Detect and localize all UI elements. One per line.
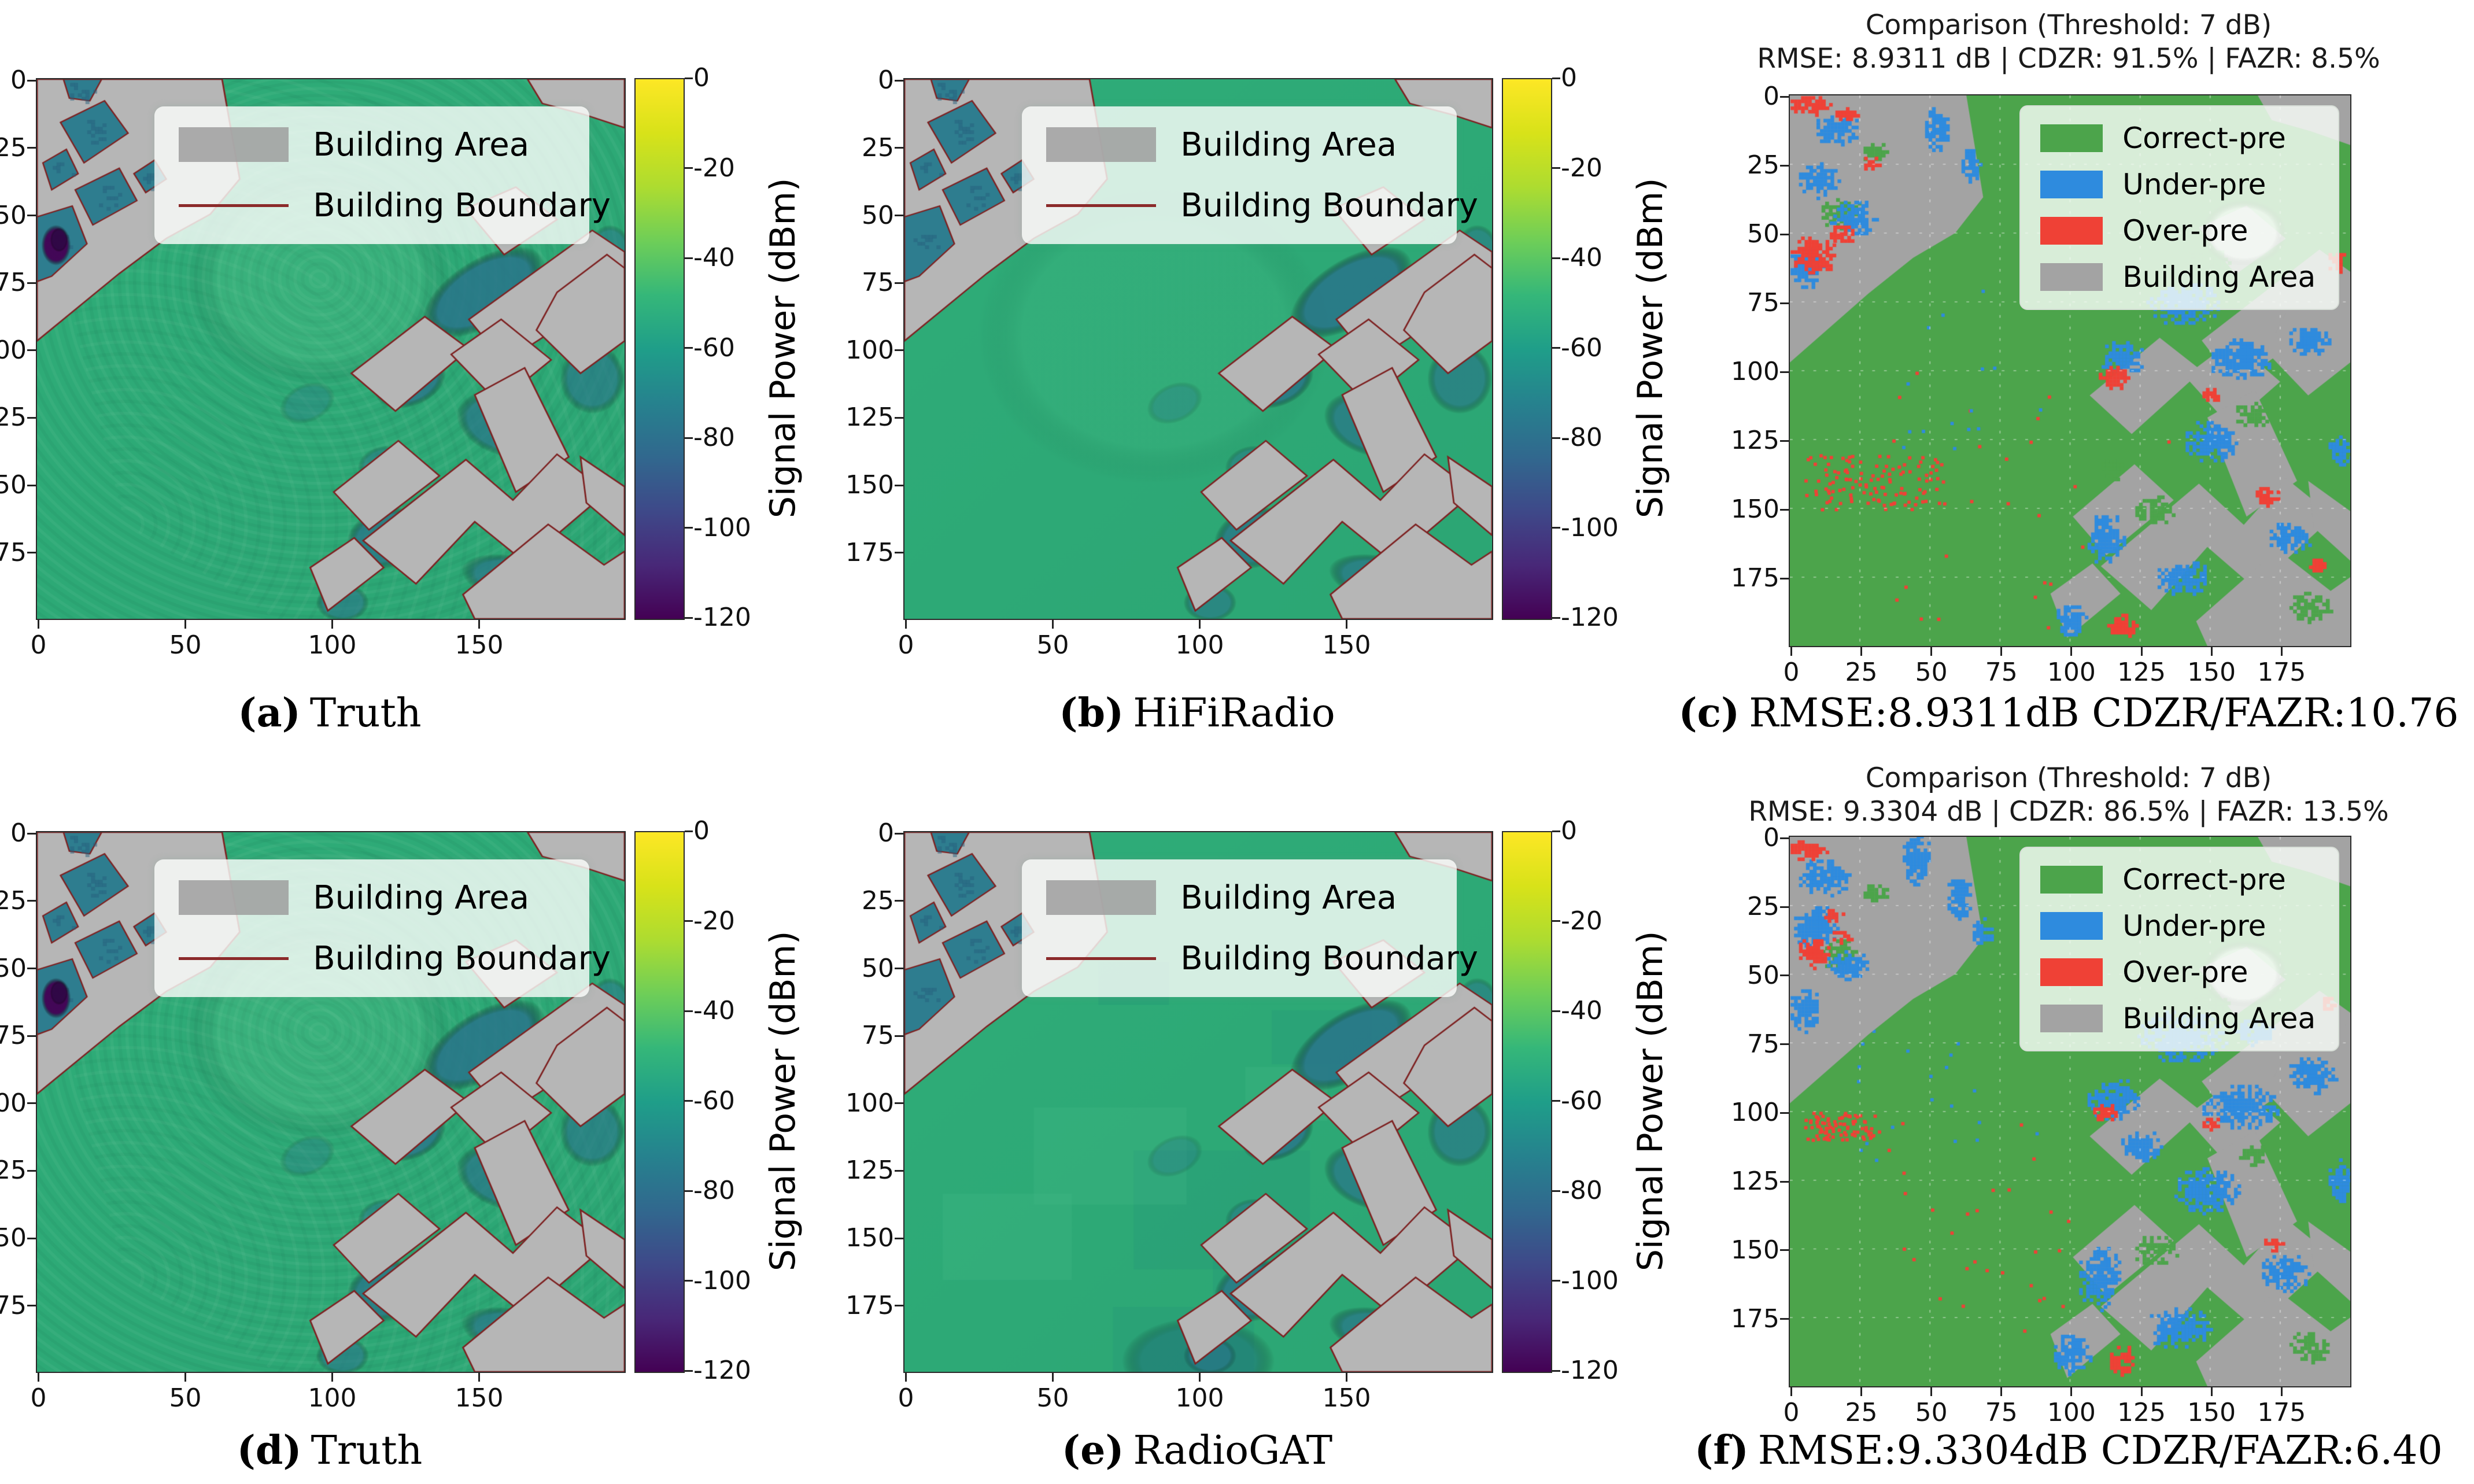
building-area-swatch	[179, 127, 289, 162]
y-tick-label: 75	[1716, 1029, 1779, 1059]
x-tick-label: 50	[1018, 1383, 1088, 1413]
colorbar: Signal Power (dBm) 0-20-40-60-80-100-120	[1502, 831, 1687, 1371]
y-tick-mark	[1780, 1249, 1789, 1251]
x-tick-label: 0	[1756, 1398, 1826, 1427]
legend-row-building-area: Building Area	[1046, 126, 1432, 164]
y-tick-mark	[895, 1035, 903, 1037]
comparison-title-line1: Comparison (Threshold: 7 dB)	[1664, 9, 2473, 41]
comparison-title-line1: Comparison (Threshold: 7 dB)	[1664, 762, 2473, 794]
x-tick-label: 0	[872, 1383, 941, 1413]
y-tick-mark	[895, 1170, 903, 1172]
caption-tag: (a)	[238, 690, 300, 736]
y-tick-label: 175	[830, 1291, 894, 1320]
correct-pre-swatch	[2040, 866, 2103, 894]
panel-radiogat: Building Area Building Boundary 05010015…	[903, 831, 1493, 1373]
y-tick-mark	[1780, 837, 1789, 839]
y-tick-label: 50	[0, 201, 27, 230]
colorbar-tick-mark	[1552, 830, 1560, 832]
caption-a: (a)Truth	[69, 690, 590, 736]
map-legend: Building Area Building Boundary	[154, 106, 589, 244]
colorbar-label: Signal Power (dBm)	[757, 78, 809, 618]
x-tick-label: 100	[2037, 658, 2106, 687]
legend-label: Under-pre	[2122, 909, 2266, 943]
colorbar-label: Signal Power (dBm)	[757, 831, 809, 1371]
x-tick-label: 150	[2177, 658, 2246, 687]
colorbar-tick-mark	[1552, 1190, 1560, 1192]
caption-text: Truth	[311, 1428, 423, 1474]
y-tick-mark	[27, 485, 36, 486]
x-tick-mark	[1930, 647, 1932, 656]
y-tick-label: 25	[1716, 150, 1779, 180]
colorbar-tick-label: -100	[1561, 1266, 1619, 1295]
colorbar-tick-mark	[685, 1010, 693, 1012]
legend-label: Building Area	[313, 879, 529, 917]
x-tick-mark	[1790, 1387, 1792, 1396]
x-tick-mark	[2070, 1387, 2072, 1396]
y-tick-mark	[1780, 96, 1789, 98]
caption-text: Truth	[310, 691, 422, 736]
x-tick-label: 125	[2107, 1398, 2176, 1427]
colorbar-tick-mark	[685, 257, 693, 259]
y-tick-mark	[895, 282, 903, 284]
caption-tag: (f)	[1694, 1427, 1749, 1474]
x-tick-label: 50	[1897, 658, 1966, 687]
y-tick-mark	[895, 900, 903, 902]
y-tick-label: 150	[0, 1223, 27, 1253]
x-tick-label: 0	[4, 1383, 73, 1413]
y-tick-mark	[27, 215, 36, 216]
x-tick-label: 100	[298, 630, 367, 660]
colorbar-tick-mark	[685, 347, 693, 349]
y-tick-mark	[1780, 371, 1789, 373]
legend-label: Correct-pre	[2122, 863, 2286, 896]
y-tick-mark	[895, 1102, 903, 1104]
y-tick-mark	[27, 1035, 36, 1037]
y-tick-label: 50	[1716, 961, 1779, 990]
colorbar-tick-label: -80	[1561, 423, 1602, 452]
x-tick-label: 75	[1967, 1398, 2036, 1427]
caption-e: (e)RadioGAT	[937, 1427, 1457, 1474]
colorbar-gradient	[1502, 831, 1552, 1373]
legend-label: Building Area	[313, 126, 529, 164]
colorbar-tick-mark	[685, 1190, 693, 1192]
x-tick-label: 50	[151, 630, 220, 660]
y-tick-mark	[895, 1305, 903, 1306]
colorbar-tick-label: -20	[1561, 906, 1602, 936]
building-boundary-line-icon	[1046, 204, 1156, 207]
y-tick-label: 175	[0, 538, 27, 567]
colorbar-tick-label: 0	[1561, 816, 1577, 846]
colorbar-tick-label: -120	[693, 603, 751, 632]
x-tick-mark	[2000, 647, 2002, 656]
y-tick-mark	[895, 215, 903, 216]
colorbar-tick-mark	[685, 77, 693, 79]
y-tick-mark	[27, 417, 36, 419]
y-tick-label: 175	[1716, 1304, 1779, 1334]
building-area-swatch	[179, 880, 289, 915]
colorbar-tick-label: -120	[1561, 1356, 1619, 1385]
x-tick-mark	[1790, 647, 1792, 656]
x-tick-label: 50	[1897, 1398, 1966, 1427]
panel-truth-bottom: Building Area Building Boundary 05010015…	[36, 831, 626, 1373]
y-tick-mark	[1780, 974, 1789, 976]
building-boundary-line-icon	[1046, 957, 1156, 960]
colorbar-tick-mark	[685, 1100, 693, 1102]
legend-row-over-pre: Over-pre	[2040, 214, 2318, 248]
y-tick-label: 100	[0, 1088, 27, 1118]
colorbar-tick-mark	[1552, 1010, 1560, 1012]
legend-row-correct-pre: Correct-pre	[2040, 121, 2318, 155]
building-boundary-line-icon	[179, 957, 289, 960]
x-tick-mark	[2281, 1387, 2283, 1396]
colorbar-tick-mark	[685, 617, 693, 619]
correct-pre-swatch	[2040, 124, 2103, 152]
y-tick-mark	[1780, 440, 1789, 442]
y-tick-mark	[27, 282, 36, 284]
caption-text: HiFiRadio	[1133, 691, 1335, 736]
x-tick-label: 0	[4, 630, 73, 660]
over-pre-swatch	[2040, 217, 2103, 245]
y-tick-mark	[1780, 1181, 1789, 1183]
x-tick-mark	[2141, 1387, 2143, 1396]
legend-row-building-area: Building Area	[2040, 260, 2318, 294]
y-tick-label: 0	[1716, 82, 1779, 111]
x-tick-label: 150	[1312, 630, 1382, 660]
y-tick-mark	[27, 1305, 36, 1306]
x-tick-mark	[2141, 647, 2143, 656]
x-tick-mark	[331, 1373, 333, 1382]
building-area-swatch	[1046, 880, 1156, 915]
caption-tag: (b)	[1059, 690, 1124, 736]
y-tick-mark	[1780, 1043, 1789, 1045]
y-tick-label: 75	[1716, 288, 1779, 318]
y-tick-label: 100	[0, 335, 27, 365]
y-tick-mark	[1780, 302, 1789, 304]
y-tick-label: 150	[1716, 1235, 1779, 1265]
y-tick-mark	[895, 968, 903, 969]
comparison-legend: Correct-pre Under-pre Over-pre Building …	[2019, 105, 2339, 310]
legend-row-building-boundary: Building Boundary	[179, 940, 565, 977]
y-tick-mark	[1780, 165, 1789, 167]
panel-comparison-bottom: Correct-pre Under-pre Over-pre Building …	[1789, 836, 2351, 1387]
y-tick-mark	[1780, 509, 1789, 511]
caption-f: (f)RMSE:9.3304dB CDZR/FAZR:6.40	[1664, 1427, 2473, 1474]
y-tick-mark	[27, 552, 36, 553]
colorbar-tick-mark	[685, 1370, 693, 1372]
colorbar-tick-label: -80	[1561, 1176, 1602, 1205]
building-area-swatch	[1046, 127, 1156, 162]
colorbar-tick-mark	[1552, 1370, 1560, 1372]
colorbar-gradient	[1502, 78, 1552, 620]
colorbar-gradient	[634, 78, 685, 620]
colorbar-label: Signal Power (dBm)	[1624, 831, 1677, 1371]
caption-b: (b)HiFiRadio	[937, 690, 1457, 736]
legend-label: Over-pre	[2122, 955, 2248, 989]
map-legend: Building Area Building Boundary	[154, 859, 589, 997]
y-tick-mark	[895, 552, 903, 553]
x-tick-mark	[2211, 647, 2213, 656]
y-tick-label: 125	[1716, 426, 1779, 455]
y-tick-mark	[895, 485, 903, 486]
legend-label: Building Area	[2122, 1002, 2316, 1035]
x-tick-mark	[38, 1373, 39, 1382]
colorbar-tick-mark	[685, 830, 693, 832]
x-tick-mark	[2211, 1387, 2213, 1396]
colorbar-tick-label: 0	[1561, 63, 1577, 93]
x-tick-mark	[38, 620, 39, 629]
building-area-swatch	[2040, 263, 2103, 291]
under-pre-swatch	[2040, 912, 2103, 940]
x-tick-label: 150	[2177, 1398, 2246, 1427]
y-tick-label: 25	[830, 133, 894, 163]
x-tick-label: 0	[872, 630, 941, 660]
colorbar-tick-mark	[1552, 527, 1560, 529]
y-tick-label: 175	[0, 1291, 27, 1320]
colorbar-tick-label: -100	[693, 1266, 751, 1295]
colorbar-tick-mark	[685, 527, 693, 529]
x-tick-label: 100	[2037, 1398, 2106, 1427]
colorbar-tick-label: -40	[693, 996, 735, 1025]
colorbar-tick-label: -120	[693, 1356, 751, 1385]
y-tick-label: 125	[0, 1156, 27, 1185]
x-tick-mark	[1346, 620, 1347, 629]
y-tick-label: 0	[0, 818, 27, 848]
y-tick-mark	[27, 833, 36, 835]
x-tick-label: 75	[1967, 658, 2036, 687]
x-tick-label: 50	[1018, 630, 1088, 660]
y-tick-label: 25	[830, 886, 894, 915]
x-tick-mark	[478, 1373, 480, 1382]
building-area-swatch	[2040, 1005, 2103, 1032]
legend-label: Building Area	[1180, 879, 1397, 917]
panel-truth-top: Building Area Building Boundary 05010015…	[36, 78, 626, 620]
y-tick-label: 150	[1716, 494, 1779, 524]
x-tick-label: 50	[151, 1383, 220, 1413]
colorbar-tick-label: -40	[1561, 996, 1602, 1025]
x-tick-label: 25	[1827, 658, 1896, 687]
x-tick-mark	[2000, 1387, 2002, 1396]
legend-label: Building Area	[1180, 126, 1397, 164]
x-tick-label: 25	[1827, 1398, 1896, 1427]
x-tick-mark	[478, 620, 480, 629]
comparison-legend: Correct-pre Under-pre Over-pre Building …	[2019, 847, 2339, 1051]
colorbar-tick-label: -20	[693, 906, 735, 936]
x-tick-label: 150	[1312, 1383, 1382, 1413]
legend-row-under-pre: Under-pre	[2040, 168, 2318, 201]
caption-tag: (e)	[1062, 1427, 1124, 1474]
y-tick-label: 0	[0, 65, 27, 95]
colorbar-tick-label: -60	[693, 333, 735, 363]
legend-row-correct-pre: Correct-pre	[2040, 863, 2318, 896]
legend-label: Correct-pre	[2122, 121, 2286, 155]
y-tick-mark	[1780, 234, 1789, 235]
y-tick-label: 25	[0, 886, 27, 915]
x-tick-mark	[331, 620, 333, 629]
y-tick-mark	[895, 147, 903, 149]
colorbar-tick-mark	[685, 920, 693, 922]
colorbar-tick-label: -40	[693, 243, 735, 272]
x-tick-mark	[2070, 647, 2072, 656]
y-tick-label: 100	[1716, 1098, 1779, 1127]
x-tick-mark	[1199, 620, 1201, 629]
legend-row-building-area: Building Area	[179, 879, 565, 917]
colorbar-tick-label: -60	[1561, 333, 1602, 363]
colorbar-tick-label: -60	[1561, 1086, 1602, 1116]
y-tick-label: 75	[830, 1021, 894, 1050]
legend-row-over-pre: Over-pre	[2040, 955, 2318, 989]
caption-tag: (c)	[1678, 690, 1740, 736]
colorbar-label: Signal Power (dBm)	[1624, 78, 1677, 618]
y-tick-label: 150	[830, 1223, 894, 1253]
colorbar-tick-mark	[685, 167, 693, 169]
colorbar-tick-label: -80	[693, 1176, 735, 1205]
caption-text: RMSE:8.9311dB CDZR/FAZR:10.76	[1749, 691, 2458, 736]
colorbar-gradient	[634, 831, 685, 1373]
under-pre-swatch	[2040, 171, 2103, 198]
y-tick-label: 100	[830, 335, 894, 365]
legend-row-under-pre: Under-pre	[2040, 909, 2318, 943]
over-pre-swatch	[2040, 958, 2103, 986]
legend-label: Under-pre	[2122, 168, 2266, 201]
x-tick-mark	[905, 620, 907, 629]
colorbar-tick-mark	[1552, 920, 1560, 922]
y-tick-label: 175	[830, 538, 894, 567]
colorbar-tick-mark	[1552, 167, 1560, 169]
map-legend: Building Area Building Boundary	[1022, 106, 1457, 244]
legend-label: Building Boundary	[313, 187, 611, 224]
comparison-title-line2: RMSE: 8.9311 dB | CDZR: 91.5% | FAZR: 8.…	[1664, 43, 2473, 75]
legend-label: Building Area	[2122, 260, 2316, 294]
x-tick-mark	[1052, 1373, 1054, 1382]
y-tick-label: 150	[0, 470, 27, 500]
y-tick-label: 0	[830, 65, 894, 95]
x-tick-label: 100	[1165, 1383, 1235, 1413]
x-tick-label: 175	[2247, 658, 2316, 687]
y-tick-mark	[27, 900, 36, 902]
panel-hifiradio: Building Area Building Boundary 05010015…	[903, 78, 1493, 620]
y-tick-label: 75	[0, 1021, 27, 1050]
colorbar: Signal Power (dBm) 0-20-40-60-80-100-120	[634, 78, 819, 618]
x-tick-label: 100	[1165, 630, 1235, 660]
legend-row-building-area: Building Area	[1046, 879, 1432, 917]
x-tick-label: 175	[2247, 1398, 2316, 1427]
y-tick-mark	[27, 1102, 36, 1104]
colorbar-tick-mark	[1552, 1280, 1560, 1282]
x-tick-mark	[1860, 1387, 1862, 1396]
map-legend: Building Area Building Boundary	[1022, 859, 1457, 997]
y-tick-mark	[1780, 578, 1789, 579]
colorbar-tick-label: -40	[1561, 243, 1602, 272]
building-boundary-line-icon	[179, 204, 289, 207]
legend-label: Building Boundary	[1180, 940, 1478, 977]
y-tick-label: 75	[830, 268, 894, 297]
y-tick-label: 125	[830, 1156, 894, 1185]
x-tick-mark	[1860, 647, 1862, 656]
y-tick-label: 25	[0, 133, 27, 163]
figure-root: Building Area Building Boundary 05010015…	[0, 0, 2474, 1484]
legend-label: Over-pre	[2122, 214, 2248, 248]
x-tick-mark	[905, 1373, 907, 1382]
x-tick-label: 150	[445, 1383, 514, 1413]
comparison-title-line2: RMSE: 9.3304 dB | CDZR: 86.5% | FAZR: 13…	[1664, 796, 2473, 828]
y-tick-label: 125	[830, 403, 894, 432]
caption-text: RadioGAT	[1133, 1428, 1333, 1474]
y-tick-mark	[27, 80, 36, 82]
y-tick-mark	[27, 968, 36, 969]
y-tick-label: 50	[830, 954, 894, 983]
y-tick-label: 150	[830, 470, 894, 500]
y-tick-label: 0	[1716, 823, 1779, 852]
y-tick-mark	[27, 147, 36, 149]
legend-row-building-area: Building Area	[2040, 1002, 2318, 1035]
colorbar-tick-label: 0	[693, 63, 710, 93]
colorbar: Signal Power (dBm) 0-20-40-60-80-100-120	[1502, 78, 1687, 618]
colorbar: Signal Power (dBm) 0-20-40-60-80-100-120	[634, 831, 819, 1371]
x-tick-label: 150	[445, 630, 514, 660]
y-tick-label: 100	[830, 1088, 894, 1118]
y-tick-label: 50	[830, 201, 894, 230]
x-tick-mark	[2281, 647, 2283, 656]
colorbar-tick-mark	[1552, 617, 1560, 619]
colorbar-tick-label: -100	[1561, 513, 1619, 542]
caption-d: (d)Truth	[69, 1427, 590, 1474]
legend-label: Building Boundary	[1180, 187, 1478, 224]
legend-row-building-boundary: Building Boundary	[1046, 940, 1432, 977]
x-tick-label: 0	[1756, 658, 1826, 687]
x-tick-mark	[1346, 1373, 1347, 1382]
colorbar-tick-label: -100	[693, 513, 751, 542]
legend-row-building-boundary: Building Boundary	[179, 187, 565, 224]
x-tick-label: 125	[2107, 658, 2176, 687]
y-tick-mark	[1780, 906, 1789, 908]
colorbar-tick-mark	[685, 1280, 693, 1282]
colorbar-tick-mark	[1552, 437, 1560, 439]
y-tick-mark	[895, 80, 903, 82]
colorbar-tick-label: -20	[693, 153, 735, 183]
colorbar-tick-label: -120	[1561, 603, 1619, 632]
y-tick-label: 50	[0, 954, 27, 983]
colorbar-tick-label: -20	[1561, 153, 1602, 183]
y-tick-label: 25	[1716, 892, 1779, 921]
y-tick-mark	[895, 833, 903, 835]
colorbar-tick-label: 0	[693, 816, 710, 846]
legend-row-building-area: Building Area	[179, 126, 565, 164]
y-tick-mark	[1780, 1318, 1789, 1320]
colorbar-tick-mark	[1552, 257, 1560, 259]
y-tick-mark	[27, 1238, 36, 1239]
panel-comparison-top: Correct-pre Under-pre Over-pre Building …	[1789, 94, 2351, 647]
y-tick-label: 100	[1716, 357, 1779, 386]
y-tick-mark	[27, 349, 36, 351]
caption-text: RMSE:9.3304dB CDZR/FAZR:6.40	[1758, 1428, 2443, 1474]
colorbar-tick-label: -80	[693, 423, 735, 452]
legend-row-building-boundary: Building Boundary	[1046, 187, 1432, 224]
y-tick-label: 50	[1716, 219, 1779, 249]
caption-c: (c)RMSE:8.9311dB CDZR/FAZR:10.76	[1664, 690, 2473, 736]
y-tick-mark	[1780, 1112, 1789, 1114]
y-tick-mark	[27, 1170, 36, 1172]
x-tick-label: 100	[298, 1383, 367, 1413]
y-tick-mark	[895, 1238, 903, 1239]
y-tick-label: 125	[0, 403, 27, 432]
y-tick-label: 75	[0, 268, 27, 297]
x-tick-mark	[184, 1373, 186, 1382]
colorbar-tick-label: -60	[693, 1086, 735, 1116]
y-tick-label: 175	[1716, 563, 1779, 593]
y-tick-label: 125	[1716, 1166, 1779, 1196]
legend-label: Building Boundary	[313, 940, 611, 977]
x-tick-mark	[1930, 1387, 1932, 1396]
